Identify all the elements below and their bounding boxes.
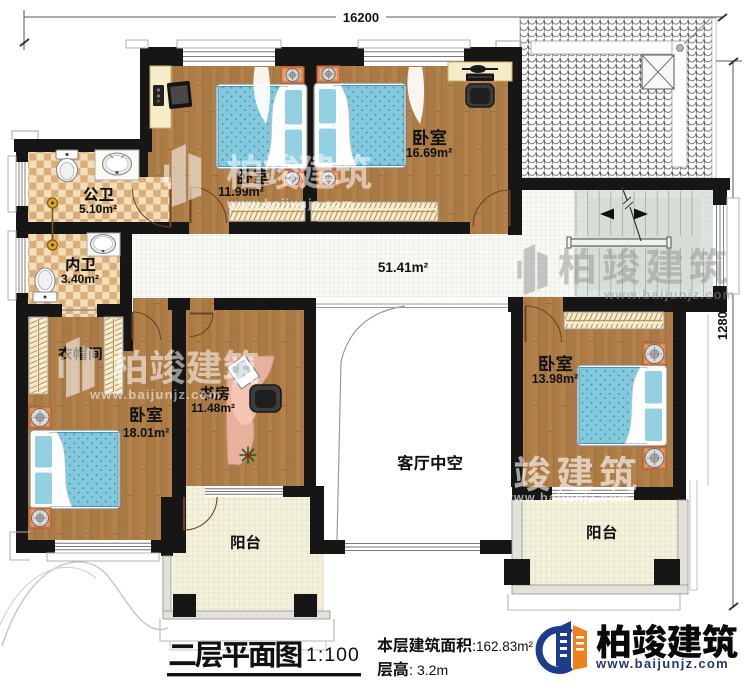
svg-text:www.baijunjz.com: www.baijunjz.com [226, 197, 354, 211]
svg-text:16.69m²: 16.69m² [406, 146, 453, 160]
svg-text:www.baijunjz.com: www.baijunjz.com [502, 491, 630, 505]
svg-text:www.baijunjz.com: www.baijunjz.com [595, 656, 729, 671]
svg-text:www.baijunjz.com: www.baijunjz.com [89, 387, 221, 402]
svg-text::: : [409, 662, 413, 679]
svg-text:3.40m²: 3.40m² [61, 272, 99, 286]
svg-text:5.10m²: 5.10m² [79, 202, 117, 216]
svg-text:www.baijunjz.com: www.baijunjz.com [603, 287, 735, 302]
svg-text:162.83m²: 162.83m² [476, 639, 534, 654]
svg-text:18.01m²: 18.01m² [123, 426, 170, 440]
svg-text:1:100: 1:100 [306, 644, 360, 666]
svg-text:11.48m²: 11.48m² [191, 401, 235, 415]
svg-text:13.98m²: 13.98m² [532, 372, 579, 386]
svg-text:16200: 16200 [343, 10, 379, 25]
svg-text:51.41m²: 51.41m² [378, 260, 429, 275]
svg-text:3.2m: 3.2m [417, 662, 448, 678]
